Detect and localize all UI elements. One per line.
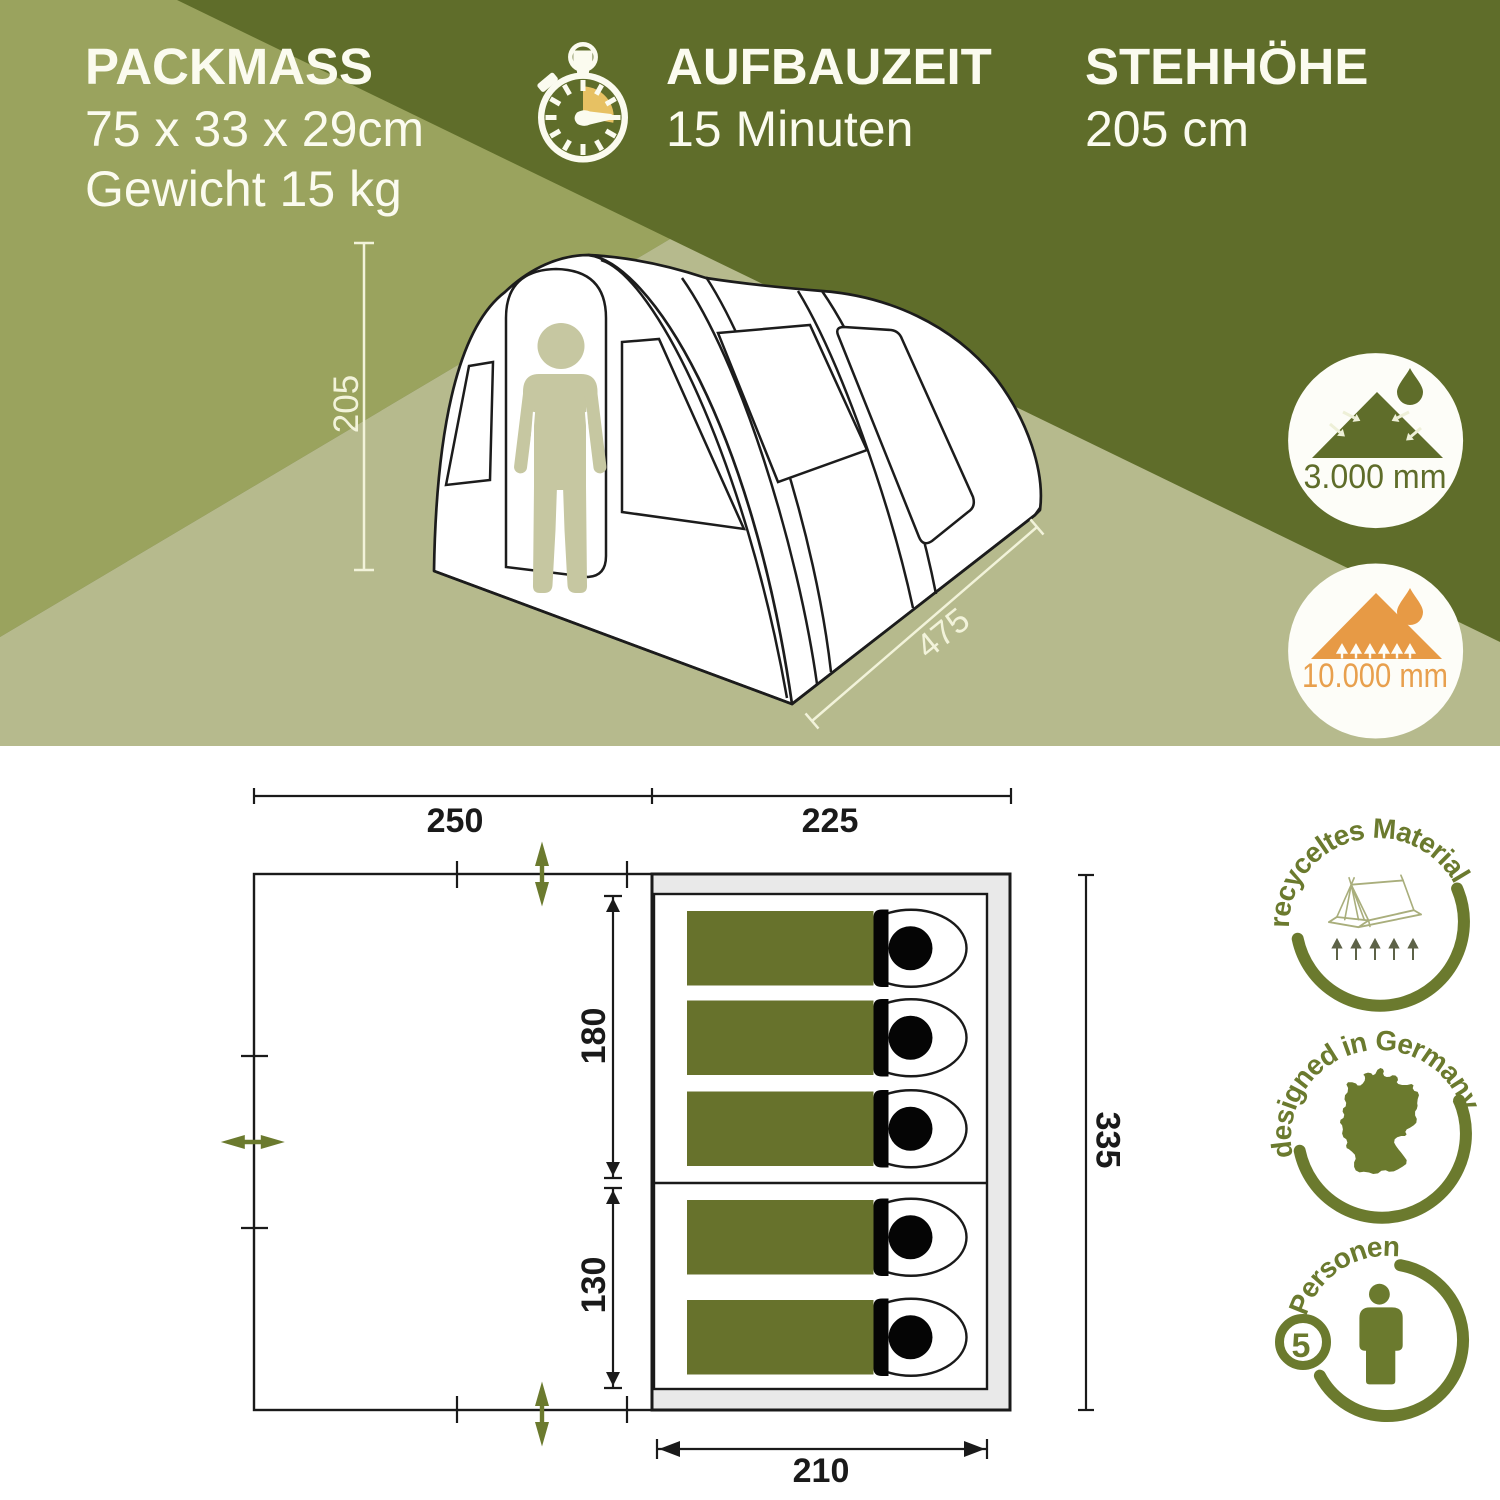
- svg-text:130: 130: [575, 1257, 613, 1314]
- svg-text:Gewicht 15 kg: Gewicht 15 kg: [85, 161, 402, 217]
- svg-text:180: 180: [575, 1008, 613, 1065]
- svg-text:210: 210: [793, 1452, 850, 1490]
- svg-text:205 cm: 205 cm: [1085, 101, 1249, 157]
- svg-text:10.000 mm: 10.000 mm: [1302, 657, 1448, 695]
- svg-text:205: 205: [327, 375, 366, 433]
- svg-text:5: 5: [1292, 1327, 1311, 1365]
- svg-text:75 x 33 x 29cm: 75 x 33 x 29cm: [85, 101, 424, 157]
- svg-text:250: 250: [427, 802, 484, 840]
- svg-text:PACKMASS: PACKMASS: [85, 38, 373, 95]
- svg-text:3.000 mm: 3.000 mm: [1304, 458, 1447, 496]
- svg-text:AUFBAUZEIT: AUFBAUZEIT: [666, 38, 992, 95]
- svg-text:STEHHÖHE: STEHHÖHE: [1085, 38, 1368, 95]
- svg-text:15 Minuten: 15 Minuten: [666, 101, 913, 157]
- svg-text:335: 335: [1089, 1112, 1127, 1169]
- svg-text:225: 225: [802, 802, 859, 840]
